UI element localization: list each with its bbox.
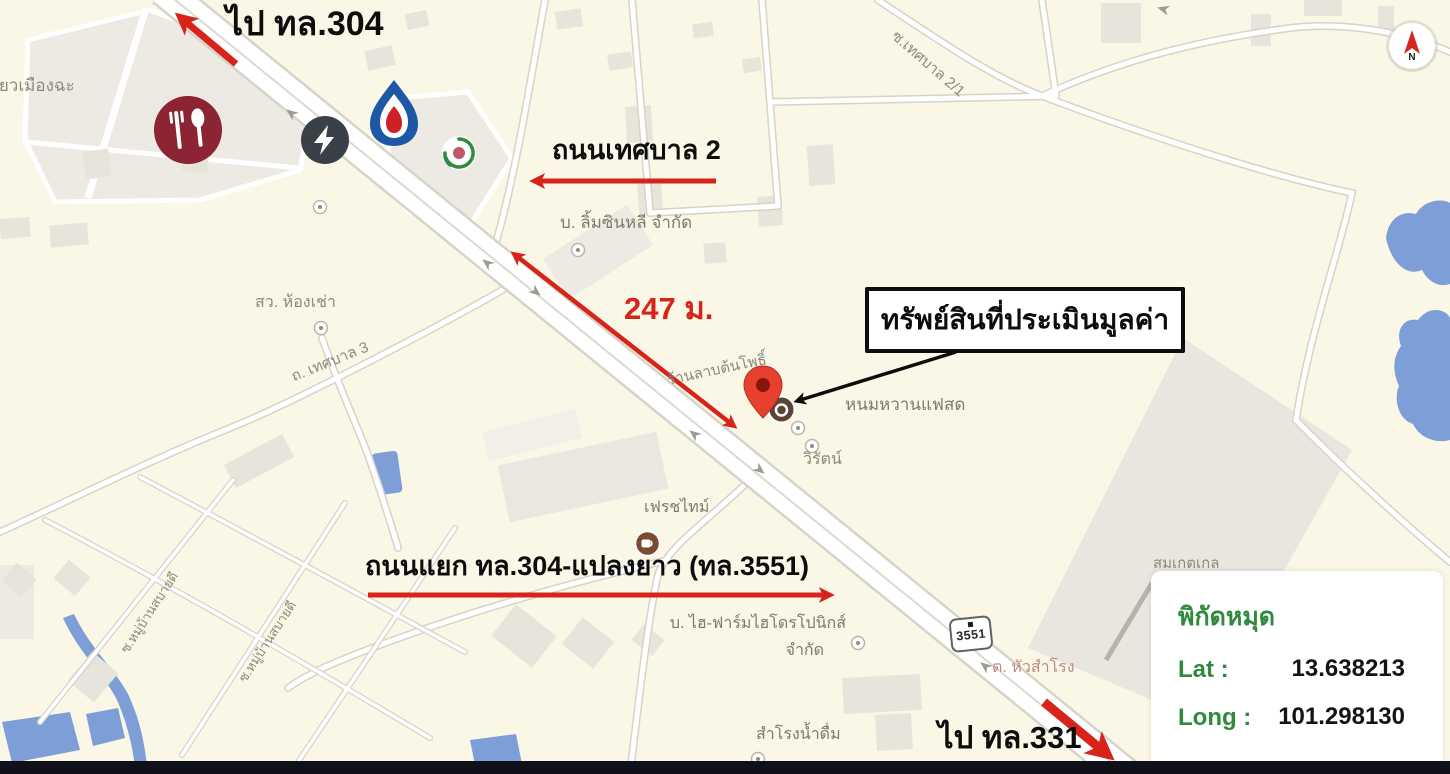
map-canvas: 3551 N เตี๋ยวเมืองฉะ สว. ห้องเช่า ถ. เทศ… <box>0 0 1450 774</box>
route-shield: 3551 <box>948 615 993 653</box>
label-freshtime: เฟรชไทม์ <box>644 499 709 517</box>
label-rental-rooms: สว. ห้องเช่า <box>255 294 336 312</box>
annotation-to-hw304: ไป ทล.304 <box>226 6 384 43</box>
pond-left-small <box>86 708 125 746</box>
label-noodle-shop: เตี๋ยวเมืองฉะ <box>0 76 75 96</box>
property-callout-box: ทรัพย์สินที่ประเมินมูลค่า <box>865 287 1185 353</box>
annotation-road-thetsaban2: ถนนเทศบาล 2 <box>552 136 721 166</box>
coordinate-card: พิกัดหมุด Lat : 13.638213 Long : 101.298… <box>1151 571 1443 767</box>
green-swirl-poi-icon <box>440 134 478 172</box>
label-hifarm-line2: จำกัด <box>668 642 824 660</box>
compass-north-label: N <box>1408 52 1415 63</box>
shield-number: 3551 <box>951 625 990 645</box>
bottom-bar <box>0 761 1450 774</box>
label-tambon-huasamrong: ต. หัวสำโรง <box>992 659 1075 677</box>
coordinate-title: พิกัดหมุด <box>1178 597 1275 637</box>
label-company-limsinlee: บ. ลิ้มซินหลี จำกัด <box>560 213 692 233</box>
label-dessert-shop: หนมหวานแฟสด <box>845 395 965 415</box>
pond-right-bottom <box>1394 310 1450 441</box>
long-label: Long : <box>1178 704 1251 732</box>
label-somket: สมเกตเกล <box>1153 555 1219 572</box>
restaurant-icon <box>152 94 224 166</box>
lat-label: Lat : <box>1178 656 1229 684</box>
annotation-junction-road: ถนนแยก ทล.304-แปลงยาว (ทล.3551) <box>365 552 809 582</box>
property-pin-icon <box>741 364 785 422</box>
annotation-to-hw331: ไป ทล.331 <box>938 721 1082 755</box>
label-samrong-water: สำโรงน้ำดื่ม <box>756 726 841 744</box>
long-value: 101.298130 <box>1278 703 1405 731</box>
ev-charger-lightning-icon <box>300 115 350 165</box>
lat-value: 13.638213 <box>1292 655 1405 683</box>
property-callout-text: ทรัพย์สินที่ประเมินมูลค่า <box>881 298 1169 342</box>
label-wirat: วิรัตน์ <box>803 451 842 469</box>
gas-station-flame-icon <box>362 76 426 148</box>
pond-right-top <box>1386 201 1450 286</box>
label-hifarm-line1: บ. ไฮ-ฟาร์มไฮโดรโปนิกส์ <box>668 615 846 633</box>
compass-icon: N <box>1389 23 1435 69</box>
annotation-distance-247m: 247 ม. <box>624 292 713 326</box>
